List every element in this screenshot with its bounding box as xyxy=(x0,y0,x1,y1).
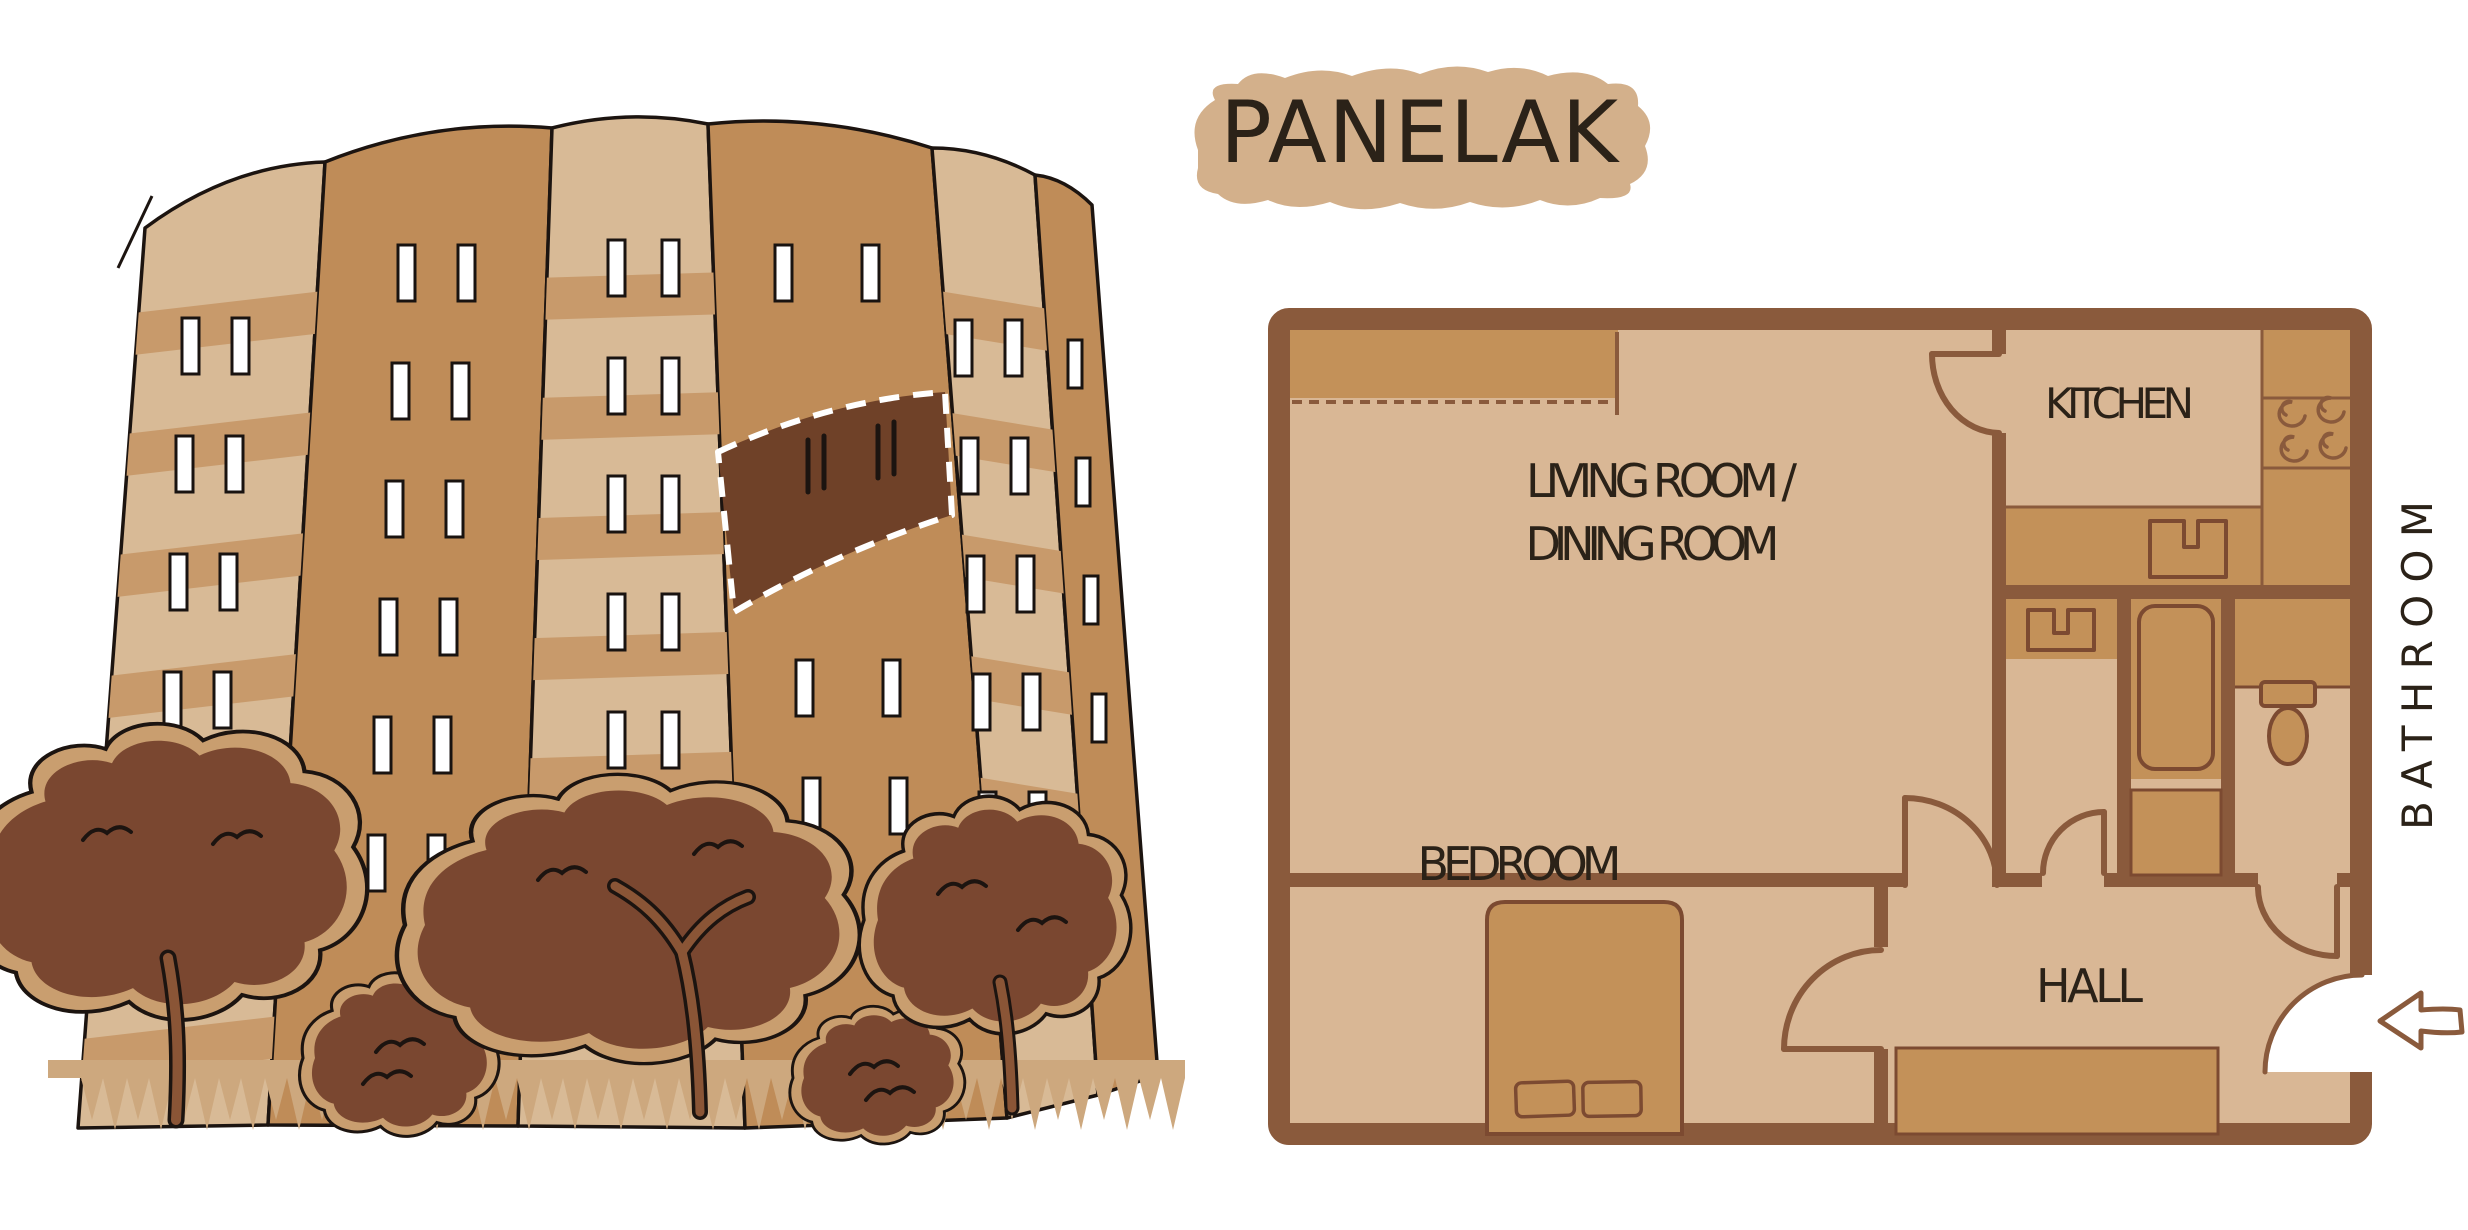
label-bedroom: BEDROOM xyxy=(1418,837,1623,891)
bathtub xyxy=(2139,606,2213,769)
bathtub-area xyxy=(2131,599,2221,875)
hall-cabinet xyxy=(1896,1048,2218,1134)
panelak-illustration: PANELAK xyxy=(0,0,2468,1230)
building-illustration xyxy=(0,117,1185,1144)
page-title: PANELAK xyxy=(1220,83,1621,183)
title-badge: PANELAK xyxy=(1194,66,1650,209)
bed xyxy=(1487,902,1682,1134)
label-living-room-line2: DINING ROOM xyxy=(1526,517,1781,571)
label-kitchen: KITCHEN xyxy=(2045,379,2195,428)
label-living-room-line1: LIVING ROOM / xyxy=(1526,454,1798,508)
toilet-bowl xyxy=(2269,708,2307,764)
entry-arrow-icon xyxy=(2380,993,2462,1048)
label-bathroom: BATHROOM xyxy=(2393,500,2442,830)
floor-plan: LIVING ROOM / DINING ROOM KITCHEN BEDROO… xyxy=(1279,319,2462,1134)
label-hall: HALL xyxy=(2036,959,2144,1013)
bath-cabinet xyxy=(2131,790,2221,875)
pillow xyxy=(1515,1081,1574,1117)
washroom-counter xyxy=(2006,599,2117,659)
toilet-tank xyxy=(2261,682,2315,706)
illustration-canvas: PANELAK xyxy=(0,0,2468,1230)
pillow xyxy=(1583,1081,1642,1116)
